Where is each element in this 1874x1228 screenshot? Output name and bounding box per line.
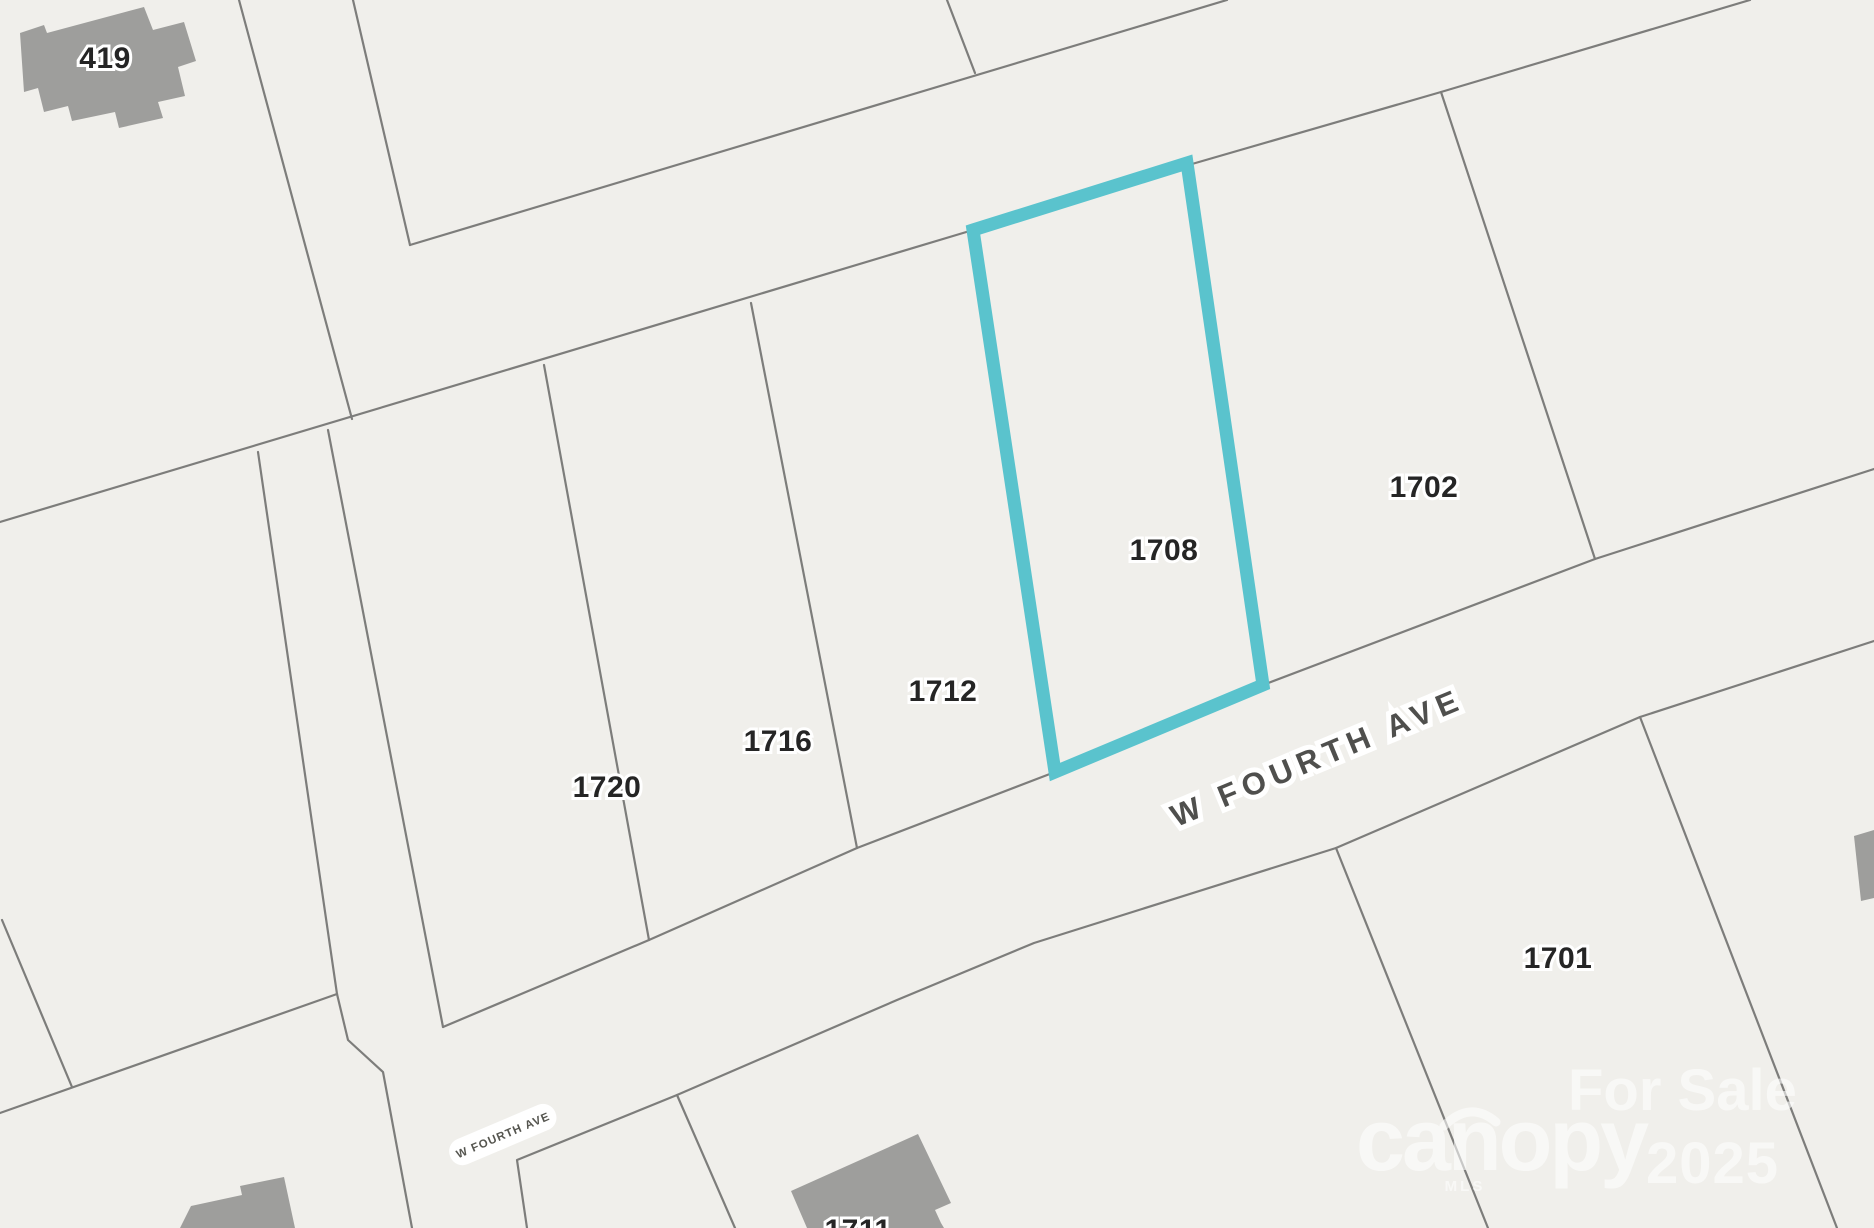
- upper-block-bottom-line: [410, 0, 1227, 245]
- watermark-year: 2025: [1646, 1131, 1779, 1196]
- southwest-block-line: [0, 994, 337, 1113]
- south-lot-division-line: [677, 1095, 735, 1228]
- selected-parcel-outline-1708[interactable]: [973, 163, 1263, 772]
- parcel-label-1702: 1702: [1390, 471, 1459, 504]
- building-label-419: 419: [79, 42, 131, 75]
- building-east-edge-footprint: [1854, 830, 1874, 901]
- row-left-edge-line: [328, 430, 443, 1027]
- map-canvas[interactable]: 419 1720 1716 1712 1708 1702 1701 1711 W…: [0, 0, 1874, 1228]
- southwest-inner-lot-line: [2, 920, 72, 1087]
- block419-right-line: [239, 0, 352, 419]
- parcel-map[interactable]: 419 1720 1716 1712 1708 1702 1701 1711 W…: [0, 0, 1874, 1228]
- rear-lot-line: [0, 0, 1750, 522]
- lot1720-1716-line: [544, 365, 649, 940]
- building-label-1711: 1711: [824, 1214, 891, 1228]
- alley-right-line: [353, 0, 410, 245]
- parcel-label-1708: 1708: [1130, 534, 1199, 567]
- parcel-label-1716: 1716: [744, 725, 813, 758]
- map-labels: 419 1720 1716 1712 1708 1702 1701 1711: [79, 42, 1592, 1228]
- building-footprints: [20, 7, 1874, 1228]
- watermark: For Sale canopy MLS 2025: [1356, 1058, 1797, 1196]
- parcel-label-1720: 1720: [573, 771, 642, 804]
- west-side-lot-line: [258, 452, 337, 994]
- building-southwest-footprint: [180, 1177, 295, 1228]
- lot1716-1712-line: [751, 303, 857, 848]
- lot1702-right-line: [1441, 92, 1595, 559]
- upper-block-division-line: [947, 0, 975, 73]
- parcel-boundaries: [0, 0, 1874, 1228]
- watermark-mls: MLS: [1445, 1178, 1486, 1195]
- parcel-label-1701: 1701: [1524, 942, 1593, 975]
- watermark-brand-canopy: canopy: [1356, 1090, 1649, 1189]
- parcel-label-1712: 1712: [909, 675, 978, 708]
- southwest-zigzag-line: [337, 994, 412, 1228]
- street-badge-w-fourth-ave: W FOURTH AVE: [445, 1100, 560, 1169]
